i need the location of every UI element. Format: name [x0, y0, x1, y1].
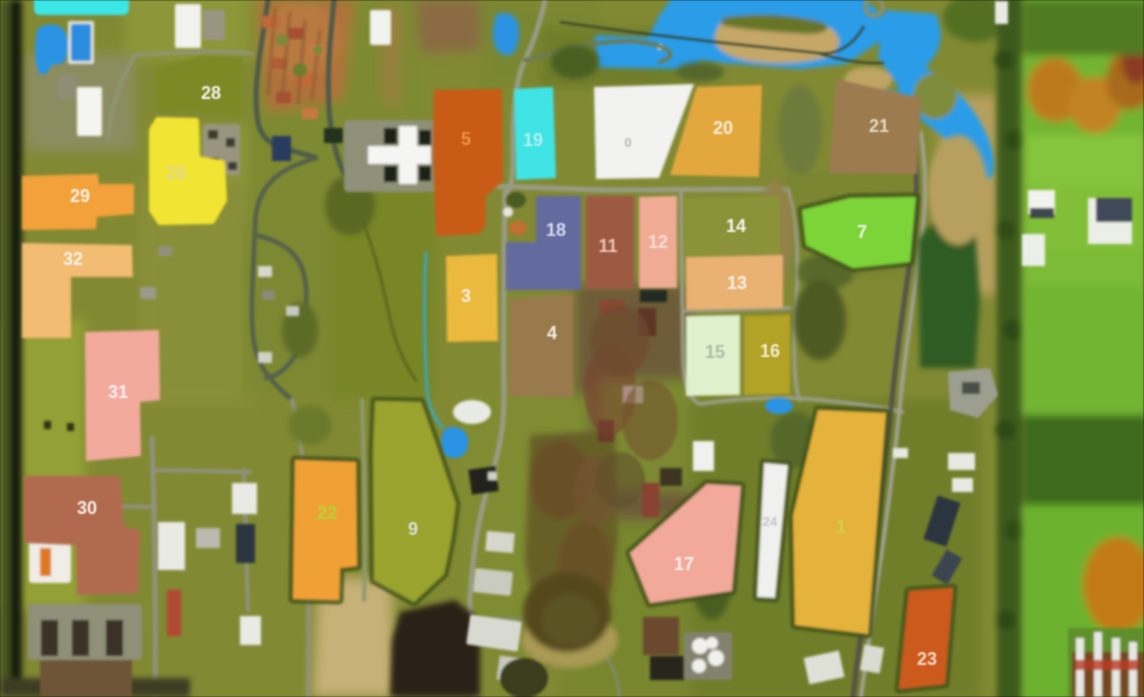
svg-text:13: 13 [727, 273, 747, 293]
svg-text:21: 21 [869, 116, 889, 136]
svg-text:7: 7 [857, 222, 867, 242]
svg-text:11: 11 [598, 236, 617, 256]
svg-text:31: 31 [108, 382, 128, 402]
svg-text:9: 9 [408, 519, 418, 539]
svg-text:32: 32 [63, 249, 83, 269]
svg-text:20: 20 [713, 118, 733, 138]
svg-text:0: 0 [624, 135, 631, 150]
svg-text:4: 4 [547, 323, 557, 343]
svg-text:15: 15 [705, 342, 725, 362]
svg-text:3: 3 [461, 286, 471, 306]
svg-text:30: 30 [77, 498, 97, 518]
svg-text:14: 14 [726, 216, 746, 236]
svg-text:22: 22 [317, 503, 337, 523]
svg-text:19: 19 [523, 130, 543, 150]
svg-text:28: 28 [201, 83, 221, 103]
svg-text:17: 17 [674, 554, 694, 574]
svg-text:5: 5 [461, 129, 471, 149]
svg-text:1: 1 [836, 517, 846, 537]
svg-text:23: 23 [917, 649, 937, 669]
svg-text:12: 12 [648, 232, 668, 252]
svg-text:26: 26 [166, 163, 186, 183]
svg-text:29: 29 [70, 186, 90, 206]
svg-text:18: 18 [546, 220, 566, 240]
svg-text:16: 16 [760, 341, 780, 361]
svg-text:24: 24 [763, 514, 778, 529]
